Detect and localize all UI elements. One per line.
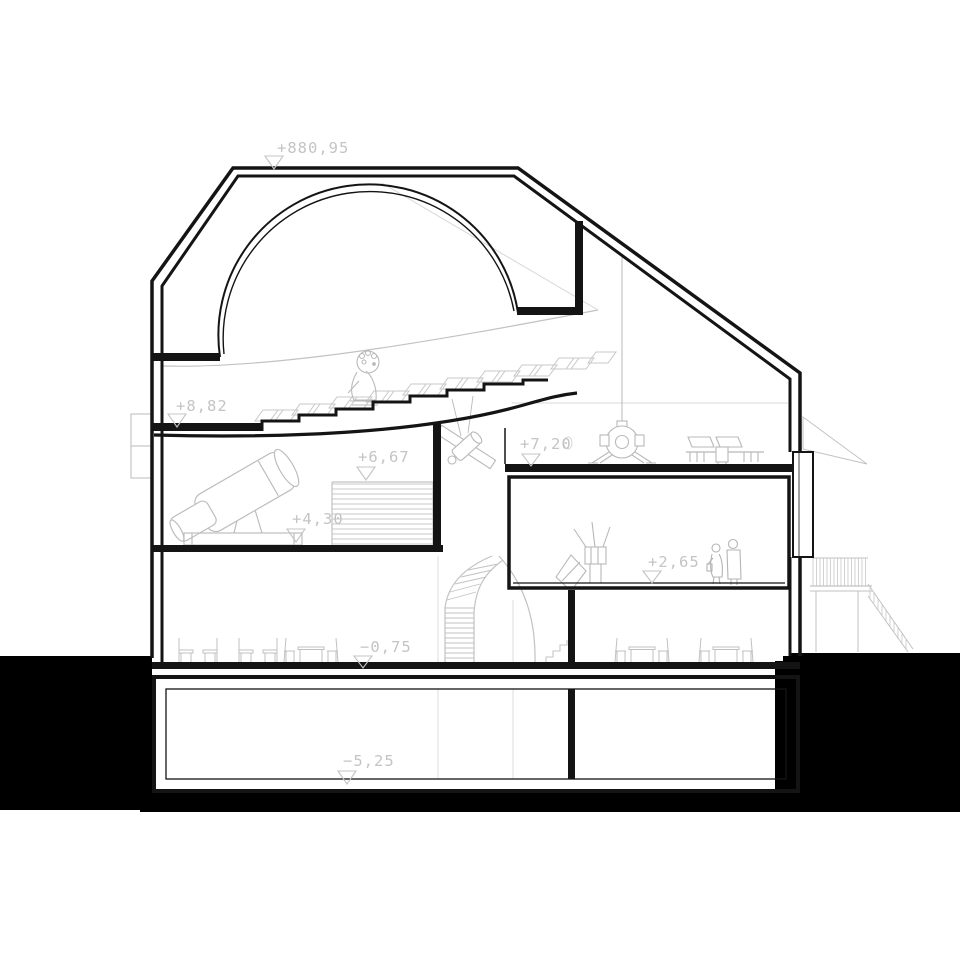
hall-floor-slab <box>152 423 262 431</box>
level-marker-exhibition <box>643 571 661 583</box>
core-wall <box>568 590 575 663</box>
space-probe-icon <box>556 522 610 591</box>
left-window <box>131 414 152 478</box>
ground-under-basement <box>140 792 840 812</box>
dome-arc <box>218 184 518 357</box>
cafe-chair-pair <box>179 638 217 662</box>
mezzanine-stair-stripes <box>332 482 433 545</box>
ground-left <box>0 656 152 810</box>
level-label-roof: +880,95 <box>277 139 349 157</box>
envelope-outer <box>152 168 800 658</box>
hanging-satellite-icon <box>436 396 495 469</box>
level-label-platform: +4,30 <box>292 510 344 528</box>
dome-ledge-left <box>152 353 220 361</box>
section-canvas: +880,95 +8,82 +6,67 +4,30 +7,20 +2,65 −0… <box>0 0 960 960</box>
dome-ledge-right <box>517 307 583 315</box>
level-label-hall: +8,82 <box>176 397 228 415</box>
iss-model-icon <box>686 437 764 465</box>
level-label-upper: +7,20 <box>520 435 572 453</box>
level-marker-basement <box>338 771 356 784</box>
lunar-lander-icon <box>588 254 656 463</box>
basement-outer <box>154 677 798 791</box>
cafe-chair-pair <box>239 638 277 662</box>
level-label-exhibition: +2,65 <box>648 553 700 571</box>
building-section-drawing: +880,95 +8,82 +6,67 +4,30 +7,20 +2,65 −0… <box>0 0 960 960</box>
exterior-deck <box>810 558 913 652</box>
ground-floor-slab <box>152 662 800 669</box>
level-label-mezzanine: +6,67 <box>358 448 410 466</box>
telescope-room-floor <box>152 545 443 552</box>
left-wing-wall <box>433 424 441 552</box>
core-stair <box>546 640 567 663</box>
basement-inner <box>166 689 786 779</box>
cafe-table-set <box>284 638 338 662</box>
basement-wall <box>568 689 575 779</box>
right-window <box>793 452 813 557</box>
level-marker-mezzanine <box>357 467 375 480</box>
seating-bowl-curve <box>163 310 598 366</box>
couple-icon <box>707 540 741 586</box>
dome-arc-inner <box>223 192 514 354</box>
telescope-icon <box>167 446 303 545</box>
auditorium-seat-rows <box>255 352 616 421</box>
spiral-stair <box>445 556 535 663</box>
upper-floor-slab <box>505 464 800 472</box>
level-label-basement: −5,25 <box>343 752 395 770</box>
cafe-table-set <box>615 638 669 662</box>
auditorium-steps <box>262 380 548 431</box>
cafe-table-set <box>699 638 753 662</box>
level-label-ground: −0,75 <box>360 638 412 656</box>
dome-right-wall <box>575 221 583 307</box>
ground-right <box>775 653 960 812</box>
